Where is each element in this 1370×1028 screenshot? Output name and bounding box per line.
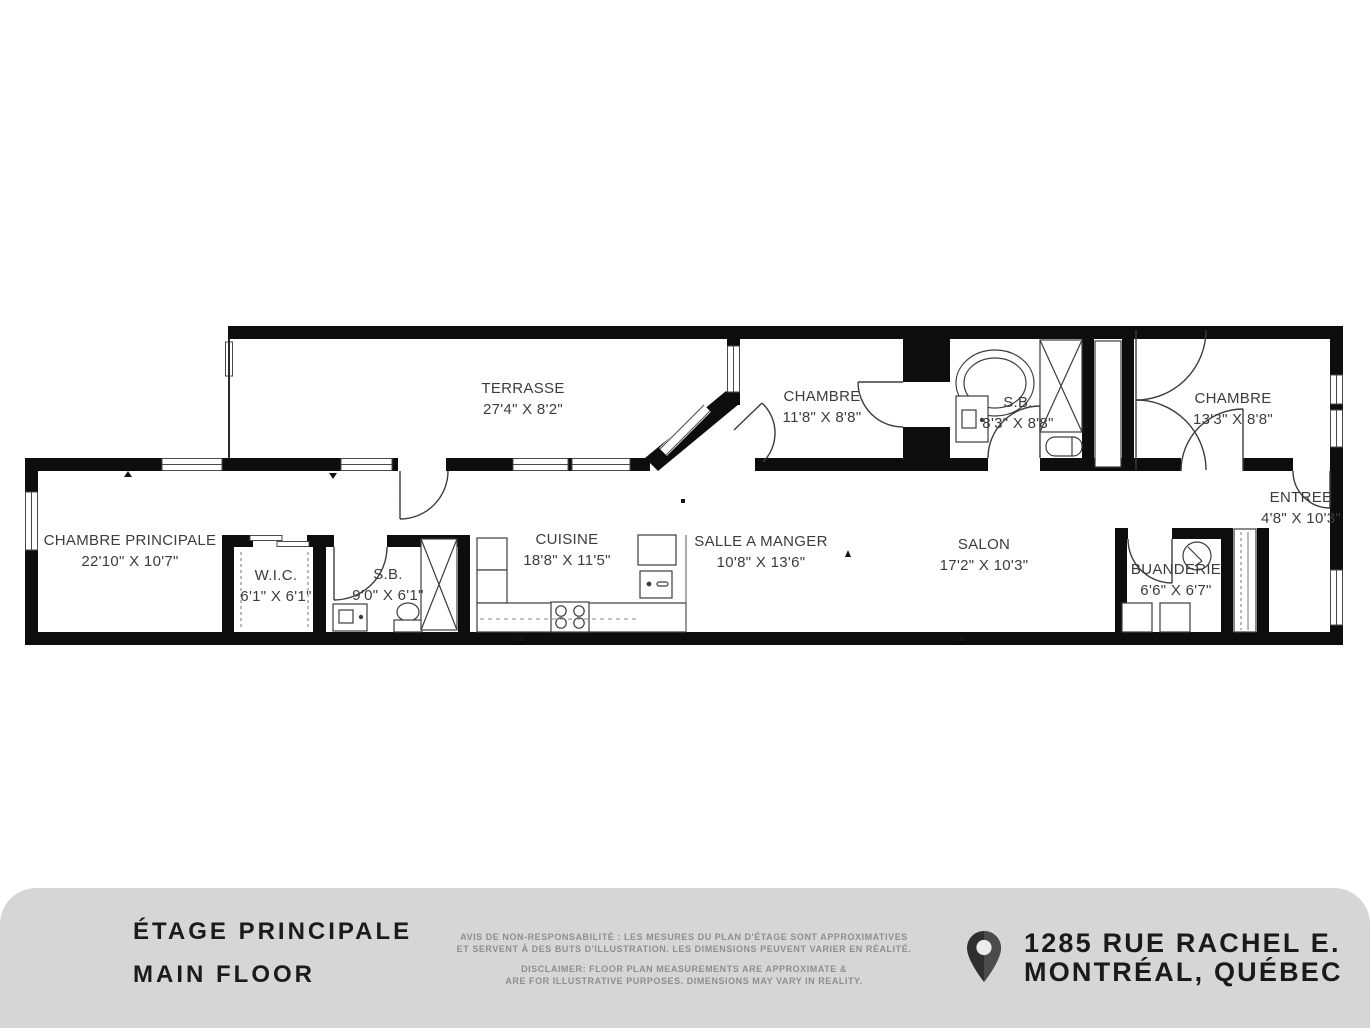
room-label-chambre-1: CHAMBRE 11'8" X 8'8" bbox=[783, 386, 862, 428]
room-name: S.B. bbox=[352, 564, 423, 585]
disclaimer-en-line1: DISCLAIMER: FLOOR PLAN MEASUREMENTS ARE … bbox=[384, 964, 984, 976]
door-diagonal bbox=[734, 403, 775, 462]
entry-closet bbox=[1234, 529, 1256, 632]
room-dims: 8'3" X 8'8" bbox=[982, 413, 1053, 434]
location-pin-icon bbox=[966, 930, 1002, 984]
laundry-unit-1 bbox=[1122, 603, 1152, 632]
room-dims: 17'2" X 10'3" bbox=[940, 555, 1029, 576]
kitchen-pantry bbox=[477, 570, 507, 603]
room-label-cuisine: CUISINE 18'8" X 11'5" bbox=[523, 529, 611, 571]
disclaimer-fr: AVIS DE NON-RESPONSABILITÉ : LES MESURES… bbox=[384, 932, 984, 955]
room-dims: 4'8" X 10'3" bbox=[1261, 508, 1341, 529]
door-terrasse bbox=[400, 471, 448, 519]
toilet-sb1 bbox=[1046, 437, 1082, 456]
disclaimer-fr-line1: AVIS DE NON-RESPONSABILITÉ : LES MESURES… bbox=[384, 932, 984, 944]
room-name: CHAMBRE bbox=[1193, 388, 1273, 409]
room-label-buanderie: BUANDERIE 6'6" X 6'7" bbox=[1131, 559, 1221, 601]
room-dims: 18'8" X 11'5" bbox=[523, 550, 611, 571]
room-label-entree: ENTREE 4'8" X 10'3" bbox=[1261, 487, 1341, 529]
room-name: CUISINE bbox=[523, 529, 611, 550]
room-dims: 9'0" X 6'1" bbox=[352, 585, 423, 606]
room-dims: 27'4" X 8'2" bbox=[481, 399, 564, 420]
room-label-salon: SALON 17'2" X 10'3" bbox=[940, 534, 1029, 576]
room-dims: 6'6" X 6'7" bbox=[1131, 580, 1221, 601]
room-dims: 10'8" X 13'6" bbox=[694, 552, 827, 573]
room-name: SALON bbox=[940, 534, 1029, 555]
room-dims: 6'1" X 6'1" bbox=[240, 586, 311, 607]
floor-title-en: MAIN FLOOR bbox=[133, 961, 315, 989]
room-name: TERRASSE bbox=[481, 378, 564, 399]
address-line1: 1285 RUE RACHEL E. bbox=[1024, 928, 1341, 959]
address-line2: MONTRÉAL, QUÉBEC bbox=[1024, 957, 1343, 988]
room-label-sb-2: S.B. 9'0" X 6'1" bbox=[352, 564, 423, 606]
room-label-terrasse: TERRASSE 27'4" X 8'2" bbox=[481, 378, 564, 420]
room-name: S.B. bbox=[982, 392, 1053, 413]
room-name: SALLE A MANGER bbox=[694, 531, 827, 552]
room-name: CHAMBRE bbox=[783, 386, 862, 407]
kitchen-fridge bbox=[477, 538, 507, 570]
room-name: BUANDERIE bbox=[1131, 559, 1221, 580]
room-label-sb-1: S.B. 8'3" X 8'8" bbox=[982, 392, 1053, 434]
floor-title-fr: ÉTAGE PRINCIPALE bbox=[133, 918, 412, 946]
disclaimer-fr-line2: ET SERVENT À DES BUTS D'ILLUSTRATION. LE… bbox=[384, 944, 984, 956]
disclaimer-en: DISCLAIMER: FLOOR PLAN MEASUREMENTS ARE … bbox=[384, 964, 984, 987]
room-label-chambre-2: CHAMBRE 13'3" X 8'8" bbox=[1193, 388, 1273, 430]
linen-closet bbox=[1095, 341, 1121, 467]
room-label-salle-a-manger: SALLE A MANGER 10'8" X 13'6" bbox=[694, 531, 827, 573]
room-name: ENTREE bbox=[1261, 487, 1341, 508]
room-dims: 22'10" X 10'7" bbox=[44, 551, 217, 572]
floor-plan-page: TERRASSE 27'4" X 8'2" CHAMBRE 11'8" X 8'… bbox=[0, 0, 1370, 1028]
room-name: CHAMBRE PRINCIPALE bbox=[44, 530, 217, 551]
room-label-chambre-principale: CHAMBRE PRINCIPALE 22'10" X 10'7" bbox=[44, 530, 217, 572]
room-dims: 11'8" X 8'8" bbox=[783, 407, 862, 428]
kitchen-cabinet bbox=[638, 535, 676, 565]
laundry-unit-2 bbox=[1160, 603, 1190, 632]
floor-plan-drawing bbox=[0, 0, 1370, 720]
stove bbox=[551, 602, 589, 632]
disclaimer-en-line2: ARE FOR ILLUSTRATIVE PURPOSES. DIMENSION… bbox=[384, 976, 984, 988]
door-chambre-1 bbox=[858, 382, 903, 427]
room-name: W.I.C. bbox=[240, 565, 311, 586]
room-label-wic: W.I.C. 6'1" X 6'1" bbox=[240, 565, 311, 607]
room-dims: 13'3" X 8'8" bbox=[1193, 409, 1273, 430]
